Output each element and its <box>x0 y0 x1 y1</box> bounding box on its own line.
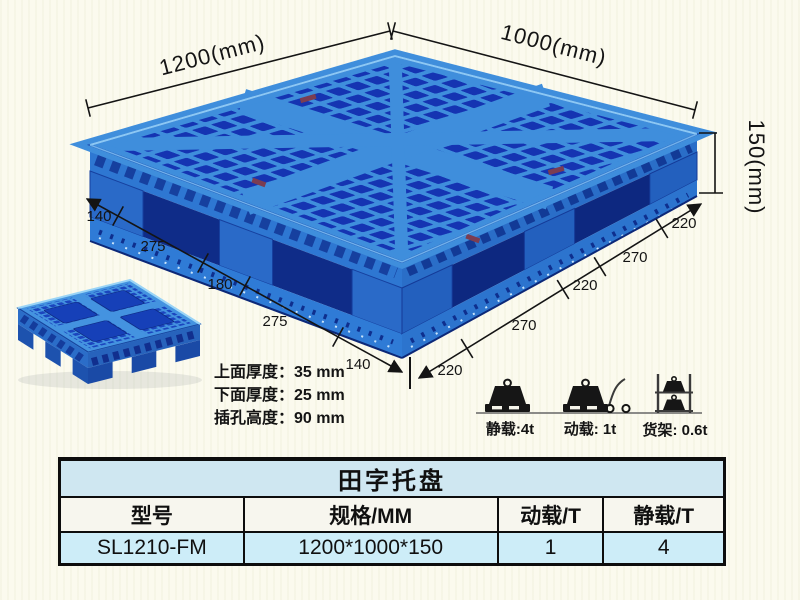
thickness-note-top: 上面厚度：35 mm <box>214 362 345 381</box>
dynamic-load-label: 动载: 1t <box>564 420 617 438</box>
thickness-note-bottom: 下面厚度：25 mm <box>214 385 345 404</box>
weight-on-pallet-icon <box>485 380 530 412</box>
dim-chain-right-label: 220 <box>572 277 597 294</box>
spec-table-data-row: SL1210-FM 1200*1000*150 1 4 <box>60 532 725 565</box>
rack-load-label: 货架: 0.6t <box>642 421 707 439</box>
cell-model: SL1210-FM <box>60 532 244 565</box>
spec-table: 田字托盘 型号 规格/MM 动载/T 静载/T SL1210-FM 1200*1… <box>58 457 726 566</box>
col-header-model: 型号 <box>60 497 244 532</box>
thickness-note-fork: 插孔高度：90 mm <box>214 408 345 427</box>
dim-chain-right-label: 220 <box>437 362 462 379</box>
dim-chain-right-label: 270 <box>622 249 647 266</box>
dim-label-150: 150(mm) <box>744 119 769 214</box>
rack-shelf-icon <box>655 374 693 413</box>
weight-trolley-icon <box>563 379 630 412</box>
dim-chain-left-label: 180 <box>207 276 232 293</box>
cell-dynamic-load: 1 <box>498 532 604 565</box>
dim-chain-left-label: 140 <box>86 208 111 225</box>
dim-chain-right-label: 220 <box>671 215 696 232</box>
dim-chain-right-label: 270 <box>511 317 536 334</box>
thickness-notes: 上面厚度：35 mm 下面厚度：25 mm 插孔高度：90 mm <box>214 362 345 427</box>
cell-static-load: 4 <box>603 532 724 565</box>
dim-chain-left-label: 275 <box>262 313 287 330</box>
spec-table-title-row: 田字托盘 <box>60 459 725 497</box>
dim-150: 150(mm) <box>699 119 769 214</box>
dim-chain-left-label: 140 <box>345 356 370 373</box>
product-spec-sheet: 1200(mm) 1000(mm) 150(mm) 140 275 180 27… <box>0 0 800 600</box>
static-load-label: 静载:4t <box>486 420 534 438</box>
cell-spec: 1200*1000*150 <box>244 532 498 565</box>
col-header-spec: 规格/MM <box>244 497 498 532</box>
spec-table-header-row: 型号 规格/MM 动载/T 静载/T <box>60 497 725 532</box>
dim-label-1200: 1200(mm) <box>157 29 268 80</box>
load-icons: 静载:4t 动载: 1t 货架: 0.6t <box>476 374 708 439</box>
col-header-dynamic-load: 动载/T <box>498 497 604 532</box>
col-header-static-load: 静载/T <box>603 497 724 532</box>
small-pallet-illustration <box>18 280 202 389</box>
table-title: 田字托盘 <box>60 459 725 497</box>
dim-chain-left-label: 275 <box>140 238 165 255</box>
